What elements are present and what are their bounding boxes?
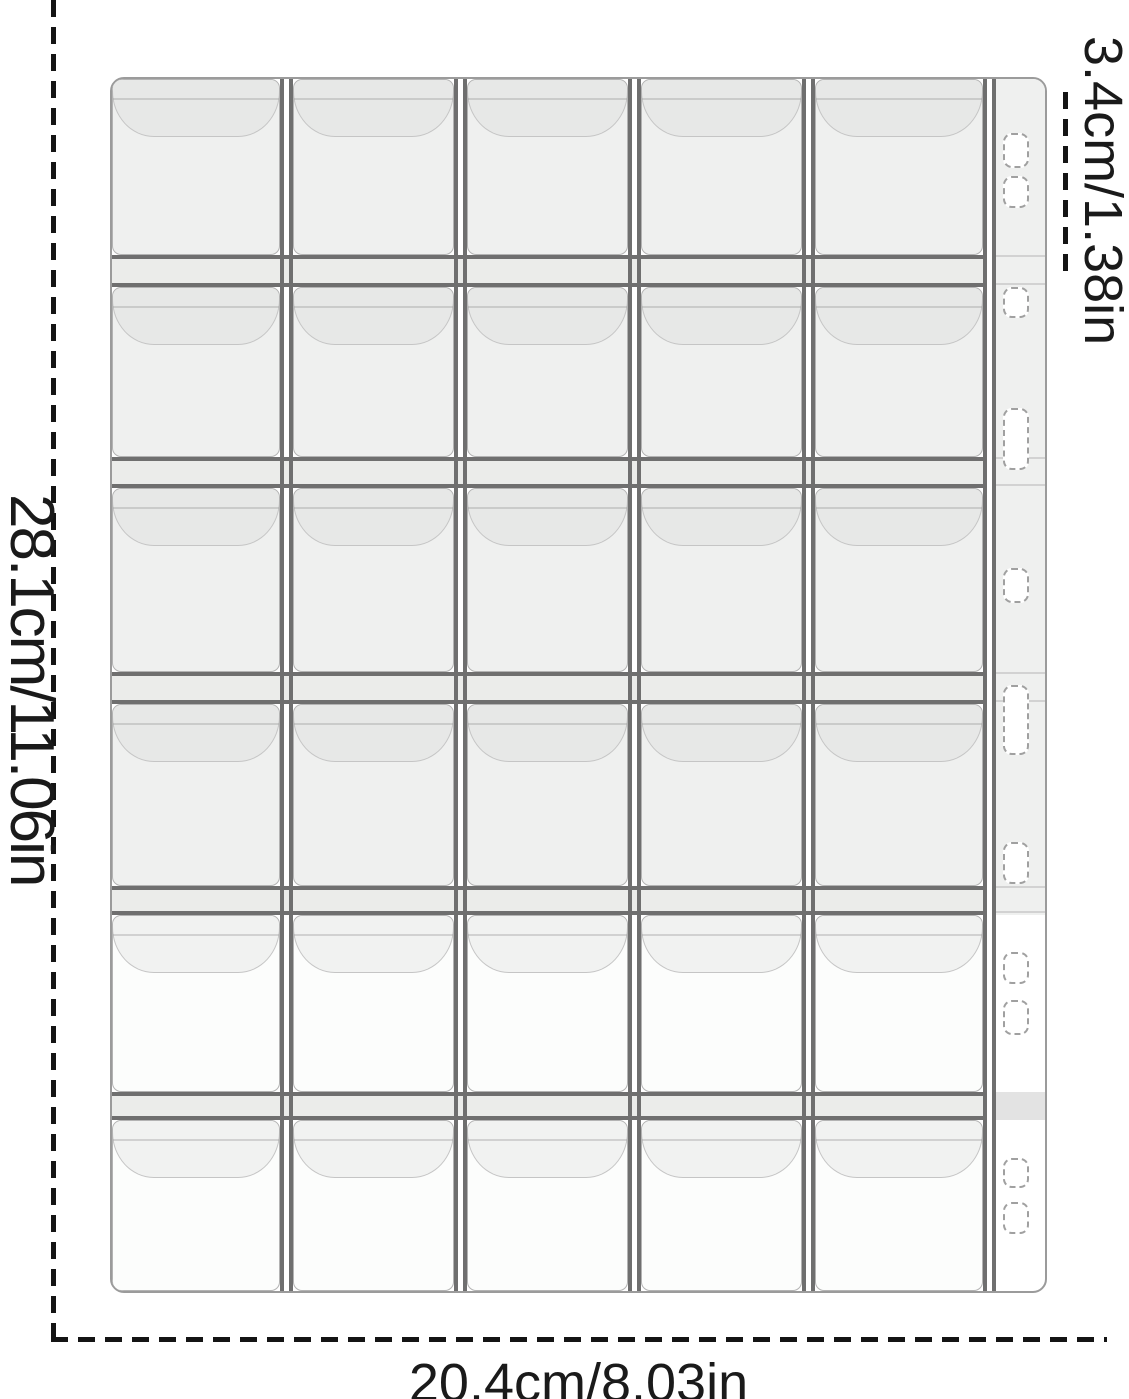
pocket-cell: [641, 79, 802, 255]
pocket-cell: [641, 915, 802, 1092]
row-seam-weld: [112, 886, 983, 915]
binder-hole: [1003, 685, 1029, 755]
strip-seam-line: [996, 886, 1045, 888]
pocket-cell: [641, 1120, 802, 1291]
pocket-flap: [467, 80, 628, 137]
pocket-flap: [293, 705, 454, 762]
pocket-flap: [815, 705, 983, 762]
binder-hole: [1003, 1202, 1029, 1234]
pocket-flap: [815, 489, 983, 546]
pocket-flap: [641, 1121, 802, 1178]
column-seam-weld: [802, 79, 815, 1291]
row-seam-weld: [112, 672, 983, 704]
pocket-flap: [293, 489, 454, 546]
pocket-cell: [112, 79, 280, 255]
pocket-cell: [467, 287, 628, 457]
pocket-cell: [641, 287, 802, 457]
pocket-cell: [467, 704, 628, 886]
pocket-flap: [467, 288, 628, 345]
pocket-cell: [112, 915, 280, 1092]
pocket-cell: [293, 79, 454, 255]
pocket-cell: [293, 704, 454, 886]
row-seam-weld: [112, 1092, 983, 1120]
pocket-flap: [467, 916, 628, 973]
pocket-flap: [815, 288, 983, 345]
pocket-flap: [467, 705, 628, 762]
binder-hole: [1003, 287, 1029, 318]
row-seam-weld: [112, 255, 983, 287]
pocket-cell: [815, 915, 983, 1092]
pocket-flap: [112, 80, 280, 137]
width-dimension-label: 20.4cm/8.03in: [110, 1356, 1047, 1399]
pocket-flap: [641, 288, 802, 345]
pocket-cell: [815, 704, 983, 886]
pocket-sheet: [110, 77, 1047, 1293]
row-seam-weld: [112, 457, 983, 488]
pocket-flap: [641, 80, 802, 137]
pocket-cell: [112, 704, 280, 886]
dimension-line-width: [51, 1337, 1107, 1342]
pocket-cell: [112, 287, 280, 457]
binder-hole: [1003, 1158, 1029, 1188]
pocket-cell: [641, 704, 802, 886]
pocket-flap: [815, 916, 983, 973]
height-dimension-label: 28.1cm/11.06in: [0, 494, 62, 885]
pocket-flap: [112, 916, 280, 973]
pocket-flap: [293, 916, 454, 973]
pocket-flap: [641, 916, 802, 973]
binder-strip: [983, 79, 1045, 1291]
strip-seam-line: [996, 911, 1045, 913]
strip-seam-band: [996, 1092, 1045, 1120]
pocket-flap: [467, 489, 628, 546]
binder-hole: [1003, 408, 1029, 470]
pocket-flap: [112, 705, 280, 762]
column-seam-weld: [628, 79, 641, 1291]
pocket-cell: [112, 1120, 280, 1291]
pocket-flap: [293, 1121, 454, 1178]
column-seam-weld: [454, 79, 467, 1291]
binder-hole: [1003, 842, 1029, 884]
product-dimension-diagram: 28.1cm/11.06in 3.4cm/1.38in 20.4cm/8.03i…: [0, 0, 1129, 1399]
strip-seam-line: [996, 255, 1045, 257]
pocket-cell: [815, 1120, 983, 1291]
pocket-cell: [293, 1120, 454, 1291]
pocket-cell: [467, 488, 628, 672]
pocket-flap: [815, 1121, 983, 1178]
binder-hole: [1003, 952, 1029, 984]
dimension-line-pocket-height: [1063, 92, 1068, 279]
pocket-flap: [293, 80, 454, 137]
pocket-flap: [112, 489, 280, 546]
strip-seam-line: [996, 672, 1045, 674]
strip-seam-line: [996, 283, 1045, 285]
pocket-flap: [112, 288, 280, 345]
strip-seam-line: [996, 484, 1045, 486]
pocket-cell: [293, 488, 454, 672]
column-seam-weld: [280, 79, 293, 1291]
pocket-flap: [293, 288, 454, 345]
pocket-flap: [467, 1121, 628, 1178]
pocket-cell: [467, 915, 628, 1092]
pocket-cell: [293, 287, 454, 457]
pocket-flap: [641, 705, 802, 762]
pocket-grid: [112, 79, 983, 1291]
binder-hole: [1003, 1000, 1029, 1035]
pocket-cell: [815, 287, 983, 457]
pocket-cell: [293, 915, 454, 1092]
binder-hole: [1003, 176, 1029, 208]
binder-hole: [1003, 133, 1029, 168]
pocket-cell: [467, 1120, 628, 1291]
pocket-cell: [112, 488, 280, 672]
pocket-cell: [641, 488, 802, 672]
pocket-height-dimension-label: 3.4cm/1.38in: [1076, 36, 1129, 345]
pocket-flap: [815, 80, 983, 137]
pocket-cell: [467, 79, 628, 255]
pocket-cell: [815, 79, 983, 255]
pocket-flap: [641, 489, 802, 546]
pocket-flap: [112, 1121, 280, 1178]
pocket-cell: [815, 488, 983, 672]
binder-hole: [1003, 568, 1029, 603]
